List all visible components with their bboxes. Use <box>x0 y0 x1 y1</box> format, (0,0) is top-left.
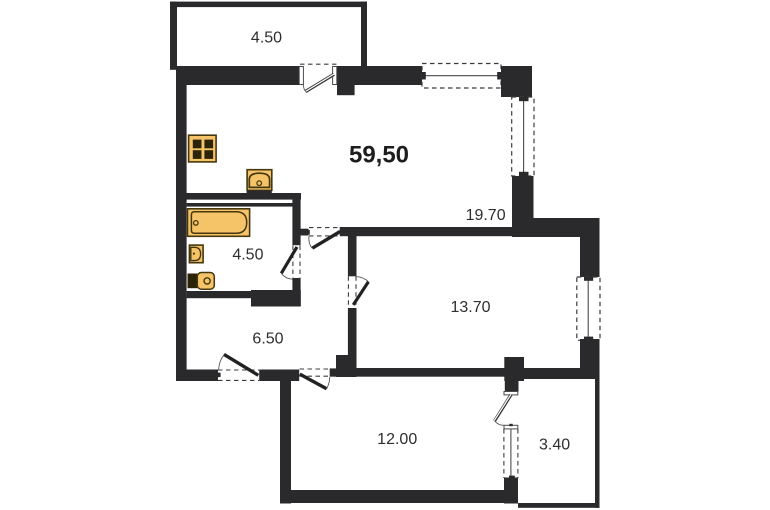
svg-text:4.50: 4.50 <box>232 247 263 264</box>
svg-text:19.70: 19.70 <box>466 207 506 224</box>
svg-text:12.00: 12.00 <box>377 431 417 448</box>
svg-text:4.50: 4.50 <box>251 30 282 47</box>
svg-text:6.50: 6.50 <box>252 330 283 347</box>
svg-text:3.40: 3.40 <box>539 437 570 454</box>
svg-text:59,50: 59,50 <box>349 142 409 169</box>
svg-text:13.70: 13.70 <box>450 299 490 316</box>
